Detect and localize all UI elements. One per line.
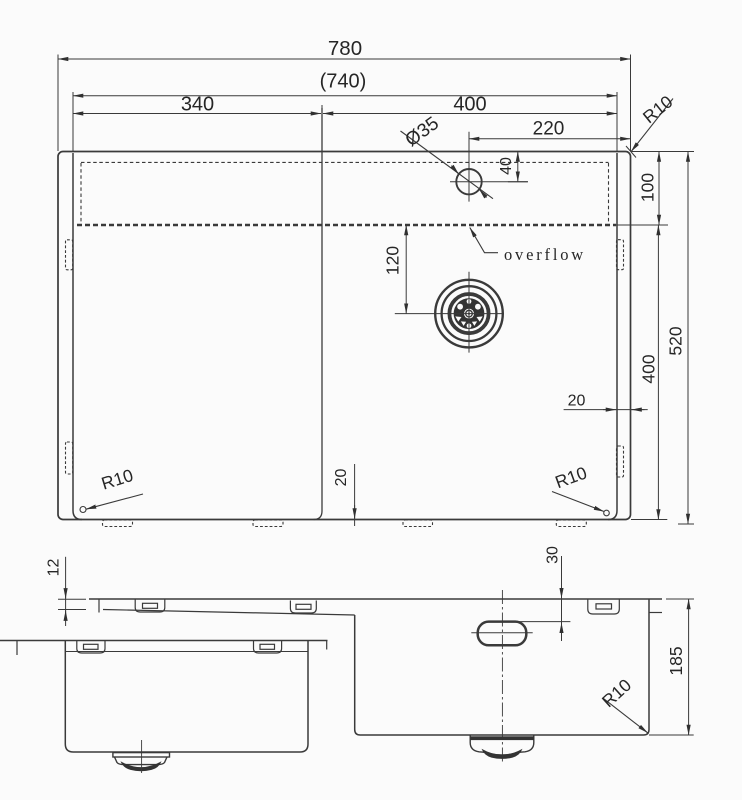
svg-text:Ø35: Ø35	[402, 113, 443, 151]
svg-text:400: 400	[453, 94, 486, 116]
svg-text:780: 780	[328, 37, 362, 60]
svg-text:R10: R10	[639, 91, 677, 127]
svg-text:30: 30	[545, 546, 562, 564]
svg-text:overflow: overflow	[504, 245, 586, 264]
svg-text:12: 12	[46, 559, 63, 577]
svg-text:20: 20	[568, 393, 586, 410]
svg-text:R10: R10	[598, 675, 635, 712]
svg-text:340: 340	[181, 94, 214, 116]
svg-text:520: 520	[666, 326, 686, 355]
svg-text:20: 20	[333, 469, 350, 487]
svg-text:185: 185	[666, 646, 686, 675]
svg-text:100: 100	[638, 173, 658, 202]
svg-text:220: 220	[533, 119, 565, 140]
svg-text:120: 120	[383, 246, 403, 275]
svg-text:40: 40	[498, 157, 515, 175]
svg-text:400: 400	[639, 354, 659, 383]
svg-text:R10: R10	[552, 462, 589, 492]
svg-text:(740): (740)	[320, 71, 367, 93]
svg-text:R10: R10	[99, 465, 136, 494]
